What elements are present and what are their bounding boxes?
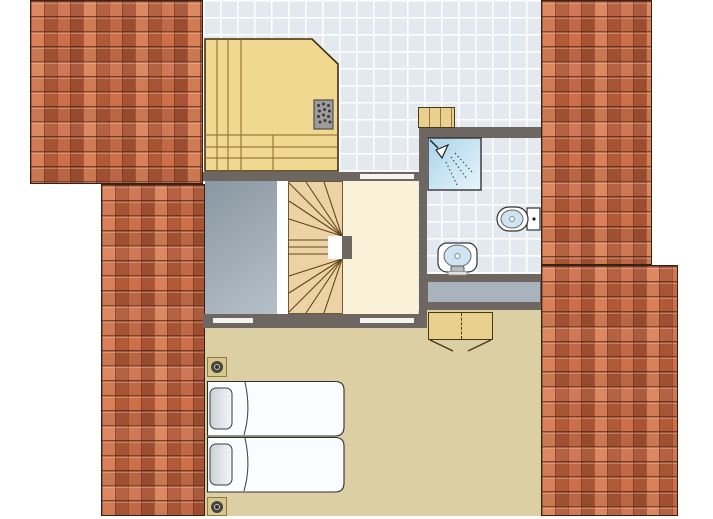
roof-left-upper [30, 0, 203, 184]
toilet [494, 204, 542, 234]
door-opening-landing-bedroom [360, 318, 414, 323]
pillow-2 [210, 444, 232, 485]
dormer-band [428, 282, 540, 302]
sauna [203, 37, 340, 173]
door-opening-hall-landing [360, 174, 414, 179]
spotlight-1 [207, 357, 227, 377]
wardrobe [428, 312, 493, 340]
washbasin [435, 240, 481, 278]
roof-right-upper [541, 0, 652, 265]
wooden-shelf [418, 107, 455, 128]
spotlight-dot-icon [215, 365, 219, 369]
bed-1 [208, 382, 345, 437]
stair-gap-strip [277, 181, 288, 314]
stair-well-notch [328, 236, 343, 259]
floor-plan [0, 0, 713, 519]
void-area [205, 181, 277, 314]
stair-newel-post [342, 236, 352, 259]
wardrobe-door-swing [427, 339, 494, 354]
sauna-heater [314, 100, 333, 129]
bed-2 [208, 438, 345, 493]
roof-right-lower [541, 265, 678, 516]
tap-icon [448, 266, 467, 275]
pillow-1 [210, 388, 232, 429]
door-opening-void-bedroom [213, 318, 253, 323]
spotlight-dot-icon [215, 505, 219, 509]
shower [427, 137, 483, 192]
wardrobe-door-split [461, 313, 462, 339]
beds [206, 380, 346, 496]
roof-left-lower [101, 184, 205, 516]
landing-floor [343, 181, 418, 314]
wall-bathroom-south [419, 274, 541, 310]
spotlight-2 [207, 497, 227, 516]
